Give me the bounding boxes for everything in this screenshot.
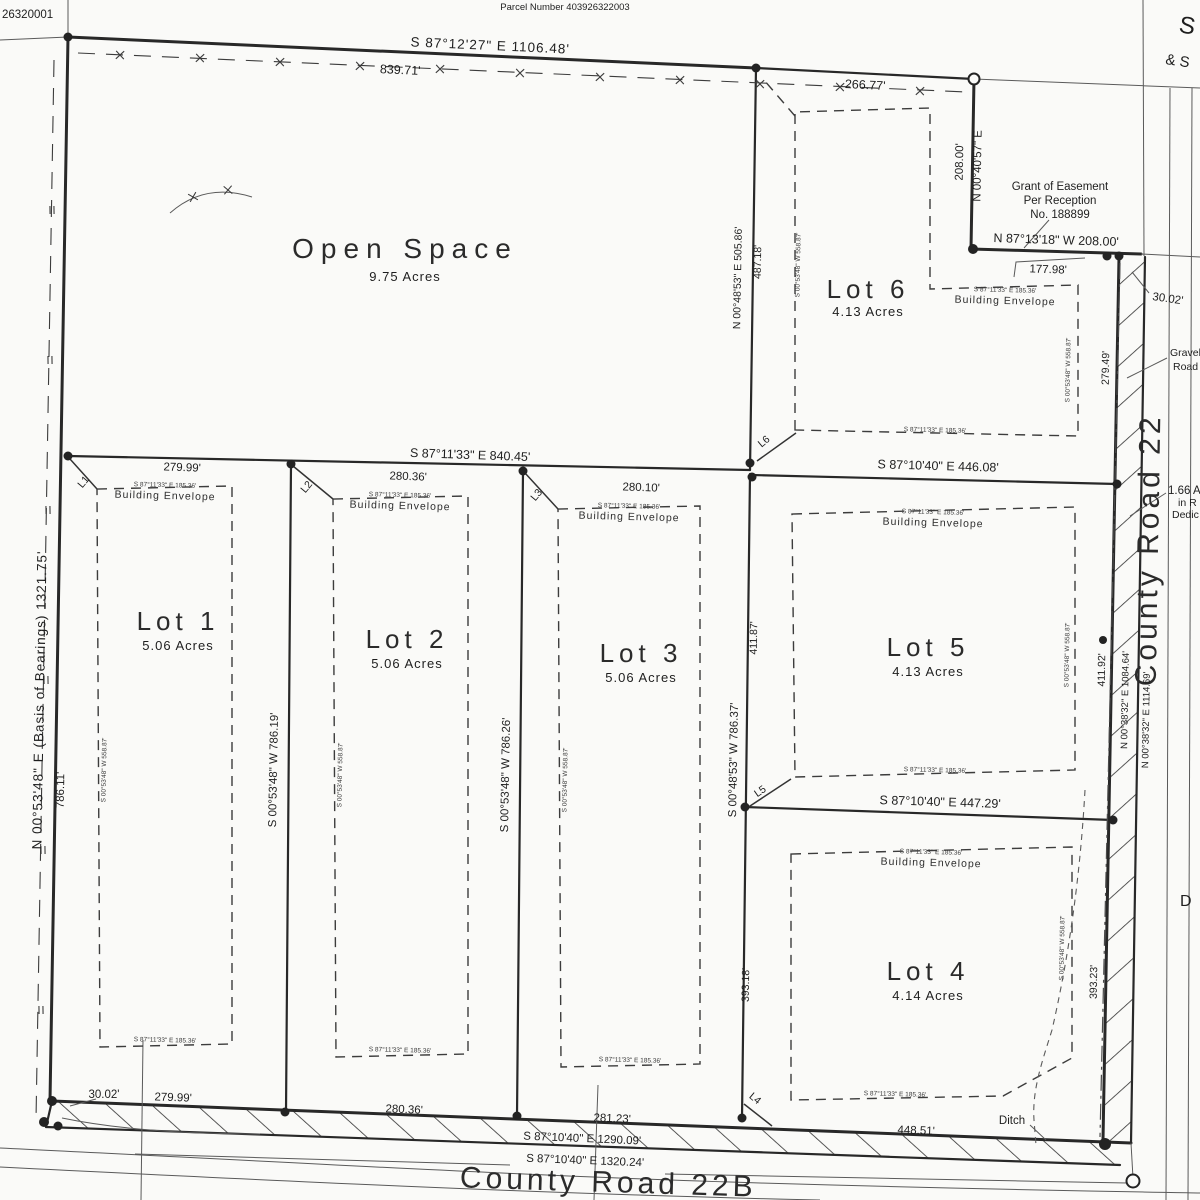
envelope-dim: S 87°11'33" E 185.36' — [904, 765, 967, 775]
monument — [64, 33, 73, 42]
dim-d23: S 00°53'48" W 786.26' — [499, 717, 513, 832]
lot3-acres: 5.06 Acres — [605, 670, 676, 685]
bot-dim-line-west — [135, 1154, 510, 1165]
dim-lot54-bearing: S 87°10'40" E 447.29' — [879, 793, 1001, 811]
dim-road-1084: N 00°38'32" E 1084.64' — [1119, 651, 1132, 749]
ditch-label: Ditch — [999, 1115, 1025, 1127]
line-label-l5: L5 — [752, 783, 769, 800]
lot1-envelope-label: Building Envelope — [114, 489, 215, 504]
envelope-dim: S 87°11'33" E 185.36' — [599, 1055, 662, 1065]
dim-d345-up: 411.87' — [748, 621, 761, 655]
dim-bot-seg2: 280.36' — [385, 1103, 423, 1117]
chamfer-l3 — [525, 473, 558, 509]
dim-easement-bearing: N 87°13'18" W 208.00' — [993, 231, 1119, 249]
dedication-note-line3: Dedic — [1172, 509, 1199, 521]
monument — [287, 460, 296, 469]
lot6-name: Lot 6 — [827, 274, 910, 304]
envelope-dim: S 87°11'33" E 185.36' — [974, 285, 1037, 295]
lot345-divider — [742, 474, 750, 1118]
edge-text-and-s: & S — [1164, 51, 1190, 71]
easement-note-line2: Per Reception — [1024, 195, 1097, 207]
line-label-l3: L3 — [528, 487, 545, 504]
gravel-road-label-1: Gravel — [1170, 347, 1200, 359]
dim-bot-seg3: 281.23' — [593, 1112, 631, 1126]
dim-d345-dn: 393.18' — [740, 968, 753, 1002]
lot1-acres: 5.06 Acres — [142, 638, 213, 653]
lot3-envelope — [558, 506, 700, 1067]
line-label-l4: L4 — [747, 1090, 764, 1107]
easement-note-line1: Grant of Easement — [1012, 181, 1109, 193]
monument-open — [969, 74, 980, 85]
lot2-name: Lot 2 — [366, 624, 449, 654]
lot3-envelope-label: Building Envelope — [578, 510, 679, 525]
envelope-dim: S 87°11'33" E 185.36' — [904, 425, 967, 435]
x-mark — [916, 87, 924, 95]
envelope-dim: S 00°53'48" W 558.87' — [560, 747, 569, 812]
line-label-l1: L1 — [75, 474, 92, 491]
dim-d6-seg: 487.18' — [752, 245, 765, 279]
line-label-l2: L2 — [298, 479, 315, 496]
monument — [513, 1112, 522, 1121]
context-lines — [0, 0, 1200, 1200]
monument — [47, 1096, 57, 1106]
dim-d345: S 00°48'53" W 786.37' — [727, 702, 741, 817]
dedication-note-line1: 1.66 A — [1168, 485, 1200, 497]
leader-lines — [70, 220, 1167, 1183]
lot3-name: Lot 3 — [600, 638, 683, 668]
envelope-dim: S 87°11'33" E 185.36' — [134, 1035, 197, 1045]
monument — [741, 803, 750, 812]
monument — [968, 244, 978, 254]
mid-line-east — [752, 475, 1117, 484]
envelope-dim: S 87°11'33" E 185.36' — [134, 480, 197, 490]
x-mark — [676, 76, 684, 84]
x-mark — [596, 73, 604, 81]
lot5-acres: 4.13 Acres — [892, 664, 963, 679]
dim-left-bearing: N 00°53'48" E (Basis of Bearings) 1321.7… — [29, 550, 49, 849]
monument — [519, 467, 528, 476]
section-line-nw-west — [0, 37, 68, 40]
lot12-divider — [286, 464, 291, 1112]
x-mark — [516, 69, 524, 77]
monument — [748, 473, 757, 482]
lot4-name: Lot 4 — [887, 956, 970, 986]
dim-mid-seg2: 280.36' — [389, 470, 427, 483]
county-road-22-label: County Road 22 — [1130, 413, 1168, 686]
dim-jog-top: 30.02' — [1152, 291, 1184, 307]
lot6-acres: 4.13 Acres — [832, 304, 903, 319]
lot4-envelope-label: Building Envelope — [880, 856, 981, 871]
boundary-west — [50, 37, 68, 1101]
dim-left-seg: 786.11' — [55, 772, 68, 809]
tick-mark — [48, 356, 52, 364]
easement-note-line3: No. 188899 — [1030, 209, 1089, 221]
boundary-lines — [46, 37, 1145, 1165]
road22-se-closure — [1131, 1143, 1133, 1178]
road22-outer-line2 — [1188, 88, 1192, 1200]
dim-d6-bearing: N 00°48'53" E 505.86' — [731, 227, 745, 330]
envelope-dim: S 00°53'48" W 558.87' — [1062, 622, 1071, 687]
edge-text-d: D — [1180, 893, 1192, 910]
plat-map-sheet: 26320001 Parcel Number 403926322003 S & … — [0, 0, 1200, 1200]
monument — [39, 1117, 49, 1127]
lot5-name: Lot 5 — [887, 632, 970, 662]
envelope-dim: S 87°11'33" E 185.36' — [902, 507, 965, 517]
lot5-envelope-label: Building Envelope — [882, 516, 983, 531]
envelope-dim: S 87°11'33" E 185.36' — [369, 1045, 432, 1055]
dim-mid-seg1: 279.99' — [163, 461, 201, 474]
envelope-dim: S 87°11'33" E 185.36' — [900, 847, 963, 857]
envelope-dim: S 00°53'48" W 558.87' — [335, 742, 344, 807]
envelope-dim: S 87°11'33" E 185.36' — [598, 501, 661, 511]
monument — [1099, 1138, 1111, 1150]
dim-ne-dist: 208.00' — [954, 143, 967, 181]
envelope-dim: S 00°53'48" W 558.87' — [793, 232, 802, 297]
dedication-note-line2: in R — [1178, 497, 1197, 509]
dim-top-seg2: 266.77' — [845, 77, 886, 93]
lot2-envelope-label: Building Envelope — [349, 499, 450, 514]
county-road-22b-label: County Road 22B — [459, 1161, 757, 1200]
envelope-dim: S 87°11'33" E 185.36' — [864, 1089, 927, 1099]
parcel-number-label: Parcel Number 403926322003 — [500, 2, 629, 13]
dim-jog-bottom: 30.02' — [89, 1089, 120, 1101]
gravel-road-label-2: Road — [1173, 361, 1198, 373]
monument — [1109, 816, 1118, 825]
dim-lot56-bearing: S 87°10'40" E 446.08' — [877, 457, 999, 474]
x-mark — [224, 186, 233, 195]
x-mark — [756, 80, 764, 88]
dim-bot-seg1: 279.99' — [154, 1091, 192, 1104]
lot6-envelope-chamfer — [764, 80, 795, 116]
monument — [1115, 252, 1124, 261]
monument — [64, 452, 73, 461]
lot23-divider — [517, 471, 523, 1116]
envelope-dim: S 87°11'33" E 185.36' — [369, 490, 432, 500]
lot1-envelope — [97, 486, 232, 1047]
envelope-dim: S 00°53'48" W 558.87' — [99, 737, 108, 802]
section-line-top — [1143, 0, 1144, 256]
dim-bot-seg4: 448.51' — [897, 1124, 935, 1137]
tick-mark — [39, 1006, 43, 1014]
fence-x-marks — [39, 51, 924, 1014]
lot1-name: Lot 1 — [137, 606, 220, 636]
monument — [738, 1114, 747, 1123]
monument-open — [1127, 1175, 1140, 1188]
plat-map-drawing: 26320001 Parcel Number 403926322003 S & … — [0, 0, 1200, 1200]
corner-parcel-text: 26320001 — [2, 9, 53, 21]
monument — [1113, 480, 1122, 489]
neighbor-top-line — [974, 79, 1200, 88]
dim-road-1114: N 00°38'32" E 1114.69' — [1140, 671, 1153, 768]
lot2-envelope — [333, 496, 468, 1057]
envelope-dim: S 00°53'48" W 558.87' — [1057, 915, 1066, 980]
dim-ne-bearing: N 00°40'57" E — [971, 130, 984, 202]
dim-d12: S 00°53'48" W 786.19' — [267, 712, 281, 827]
open-space-acres: 9.75 Acres — [369, 269, 440, 284]
dim-easement-seg: 177.98' — [1029, 263, 1067, 276]
monument — [281, 1108, 290, 1117]
dim-mid-bearing: S 87°11'33" E 840.45' — [410, 446, 531, 464]
line-label-l6: L6 — [756, 433, 773, 450]
open-space-name: Open Space — [292, 233, 518, 264]
monument — [752, 64, 761, 73]
monument — [746, 459, 755, 468]
lot2-acres: 5.06 Acres — [371, 656, 442, 671]
chamfer-l4 — [744, 1104, 772, 1126]
monument — [1103, 252, 1112, 261]
lot4-acres: 4.14 Acres — [892, 988, 963, 1003]
building-envelopes — [97, 80, 1078, 1100]
dim-road-411: 411.92' — [1096, 653, 1109, 687]
monument — [1099, 636, 1107, 644]
edge-text-s: S — [1177, 11, 1197, 40]
dim-top-seg1: 839.71' — [380, 62, 421, 78]
open-space-squiggle — [170, 192, 252, 213]
chamfer-l2 — [293, 466, 333, 499]
lot45-divider — [745, 807, 1113, 820]
dim-road-279: 279.49' — [1100, 351, 1113, 385]
envelope-dim: S 00°53'48" W 558.87' — [1063, 337, 1072, 402]
dim-road-393: 393.23' — [1088, 965, 1101, 999]
road22-outer-line1 — [1166, 88, 1170, 1200]
monument — [54, 1122, 63, 1131]
dim-mid-seg3: 280.10' — [622, 481, 660, 494]
lot6-envelope-label: Building Envelope — [954, 294, 1055, 309]
